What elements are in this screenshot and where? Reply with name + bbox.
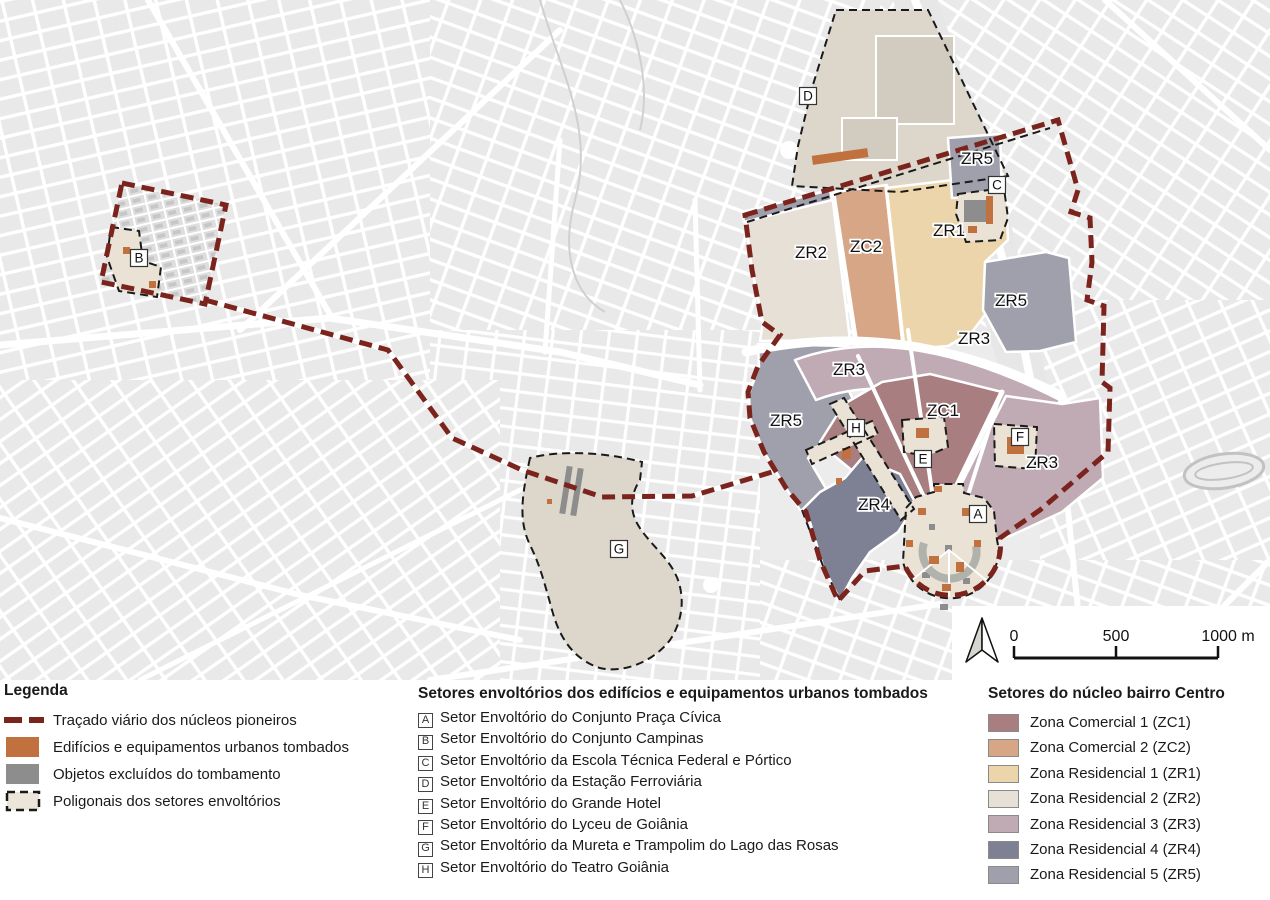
zone-label: ZR4 — [858, 495, 890, 514]
legend-item-pioneer-layout: Traçado viário dos núcleos pioneiros — [4, 710, 404, 730]
zone-color-swatch — [988, 815, 1019, 833]
zone-legend-item: Zona Comercial 2 (ZC2) — [988, 735, 1268, 760]
legend-item-label: Objetos excluídos do tombamento — [53, 766, 281, 783]
sector-marker-b: B — [131, 250, 148, 267]
sector-letter: A — [973, 507, 982, 522]
sector-legend-label: Setor Envoltório da Escola Técnica Feder… — [440, 752, 792, 769]
zone-legend-label: Zona Residencial 1 (ZR1) — [1030, 761, 1201, 786]
sector-legend-label: Setor Envoltório da Estação Ferroviária — [440, 773, 702, 790]
sector-legend-item: BSetor Envoltório do Conjunto Campinas — [418, 728, 984, 749]
legend-item-listed-buildings: Edifícios e equipamentos urbanos tombado… — [4, 737, 404, 757]
zone-color-swatch — [988, 714, 1019, 732]
zone-legend-label: Zona Residencial 4 (ZR4) — [1030, 837, 1201, 862]
zone-label: ZC2 — [850, 237, 882, 256]
legend-item-excluded-objects: Objetos excluídos do tombamento — [4, 764, 404, 784]
zone-color-swatch — [988, 739, 1019, 757]
sector-marker-a: A — [970, 506, 987, 523]
sector-legend-item: GSetor Envoltório da Mureta e Trampolim … — [418, 835, 984, 856]
legend-item-envelope-polygons: Poligonais dos setores envoltórios — [4, 791, 404, 811]
sector-legend-item: DSetor Envoltório da Estação Ferroviária — [418, 771, 984, 792]
sector-legend-label: Setor Envoltório do Conjunto Praça Cívic… — [440, 709, 721, 726]
legend-title: Legenda — [4, 682, 404, 700]
zone-legend-label: Zona Comercial 1 (ZC1) — [1030, 710, 1191, 735]
sector-legend-label: Setor Envoltório do Teatro Goiânia — [440, 859, 669, 876]
zone-label: ZR3 — [958, 329, 990, 348]
sector-legend-label: Setor Envoltório do Lyceu de Goiânia — [440, 816, 688, 833]
legend-sectors-column: Setores envoltórios dos edifícios e equi… — [418, 680, 984, 878]
zone-legend-label: Zona Comercial 2 (ZC2) — [1030, 735, 1191, 760]
sector-letter-box: B — [418, 735, 433, 750]
sector-letter-box: C — [418, 756, 433, 771]
roundabout — [703, 577, 719, 593]
sector-letter: G — [614, 542, 625, 557]
sector-letter: H — [851, 421, 861, 436]
zones-legend-title: Setores do núcleo bairro Centro — [988, 684, 1268, 704]
sector-marker-f: F — [1012, 429, 1029, 446]
zone-legend-item: Zona Residencial 5 (ZR5) — [988, 862, 1268, 887]
sector-letter: F — [1016, 430, 1024, 445]
legend-zones-column: Setores do núcleo bairro Centro Zona Com… — [988, 680, 1268, 888]
zone-label: ZR2 — [795, 243, 827, 262]
map-canvas: ZR2 ZC2 ZR1 ZR5 ZR5 ZR3 ZR3 ZC1 ZR5 ZR3 … — [0, 0, 1270, 680]
sector-letter: D — [803, 89, 813, 104]
legend-item-label: Traçado viário dos núcleos pioneiros — [53, 712, 297, 729]
scale-tick-0: 0 — [1010, 628, 1019, 645]
zone-legend-label: Zona Residencial 3 (ZR3) — [1030, 812, 1201, 837]
roundabout — [780, 141, 798, 159]
sector-legend-label: Setor Envoltório da Mureta e Trampolim d… — [440, 837, 839, 854]
zone-label: ZR3 — [833, 360, 865, 379]
scale-tick-1000: 1000 m — [1201, 628, 1254, 645]
sector-letter-box: A — [418, 713, 433, 728]
sector-marker-d: D — [800, 88, 817, 105]
sector-legend-item: ASetor Envoltório do Conjunto Praça Cívi… — [418, 707, 984, 728]
zone-label: ZR5 — [961, 149, 993, 168]
sector-legend-item: HSetor Envoltório do Teatro Goiânia — [418, 857, 984, 878]
sector-letter-box: E — [418, 799, 433, 814]
sector-marker-g: G — [611, 541, 628, 558]
zones-legend-list: Zona Comercial 1 (ZC1) Zona Comercial 2 … — [988, 710, 1268, 888]
zone-label: ZR5 — [995, 291, 1027, 310]
sector-letter-box: F — [418, 820, 433, 835]
sector-letter-box: D — [418, 777, 433, 792]
dashed-line-swatch — [4, 710, 44, 730]
zone-legend-item: Zona Residencial 1 (ZR1) — [988, 761, 1268, 786]
sector-letter-box: G — [418, 842, 433, 857]
zone-legend-label: Zona Residencial 5 (ZR5) — [1030, 862, 1201, 887]
gray-swatch — [4, 764, 44, 784]
zone-color-swatch — [988, 841, 1019, 859]
zone-color-swatch — [988, 866, 1019, 884]
zone-color-swatch — [988, 790, 1019, 808]
zone-legend-label: Zona Residencial 2 (ZR2) — [1030, 786, 1201, 811]
sector-legend-item: FSetor Envoltório do Lyceu de Goiânia — [418, 814, 984, 835]
sector-legend-label: Setor Envoltório do Conjunto Campinas — [440, 730, 703, 747]
sector-legend-item: CSetor Envoltório da Escola Técnica Fede… — [418, 750, 984, 771]
zone-legend-item: Zona Residencial 4 (ZR4) — [988, 837, 1268, 862]
zone-color-swatch — [988, 765, 1019, 783]
sector-letter-box: H — [418, 863, 433, 878]
scale-tick-500: 500 — [1103, 628, 1130, 645]
city-map: ZR2 ZC2 ZR1 ZR5 ZR5 ZR3 ZR3 ZC1 ZR5 ZR3 … — [0, 0, 1270, 680]
zone-legend-item: Zona Residencial 3 (ZR3) — [988, 812, 1268, 837]
sector-marker-e: E — [915, 451, 932, 468]
zone-label: ZR5 — [770, 411, 802, 430]
legend-item-label: Edifícios e equipamentos urbanos tombado… — [53, 739, 349, 756]
sector-letter: B — [134, 251, 143, 266]
zone-label: ZR1 — [933, 221, 965, 240]
zone-legend-item: Zona Comercial 1 (ZC1) — [988, 710, 1268, 735]
legend-symbols-column: Legenda Traçado viário dos núcleos pione… — [4, 680, 404, 818]
sector-marker-c: C — [989, 177, 1006, 194]
zone-label: ZC1 — [927, 401, 959, 420]
dashed-outline-swatch — [4, 790, 44, 812]
sector-legend-item: ESetor Envoltório do Grande Hotel — [418, 793, 984, 814]
sectors-legend-title: Setores envoltórios dos edifícios e equi… — [418, 684, 984, 704]
legend-item-label: Poligonais dos setores envoltórios — [53, 793, 281, 810]
orange-swatch — [4, 737, 44, 757]
sector-letter: E — [918, 452, 927, 467]
sectors-legend-list: ASetor Envoltório do Conjunto Praça Cívi… — [418, 707, 984, 878]
map-furniture: 0 500 1000 m — [952, 606, 1270, 680]
legend-panel: Legenda Traçado viário dos núcleos pione… — [0, 680, 1270, 900]
zone-legend-item: Zona Residencial 2 (ZR2) — [988, 786, 1268, 811]
station-building — [876, 36, 954, 124]
sector-letter: C — [992, 178, 1002, 193]
sector-legend-label: Setor Envoltório do Grande Hotel — [440, 795, 661, 812]
sector-marker-h: H — [848, 420, 865, 437]
zone-label: ZR3 — [1026, 453, 1058, 472]
